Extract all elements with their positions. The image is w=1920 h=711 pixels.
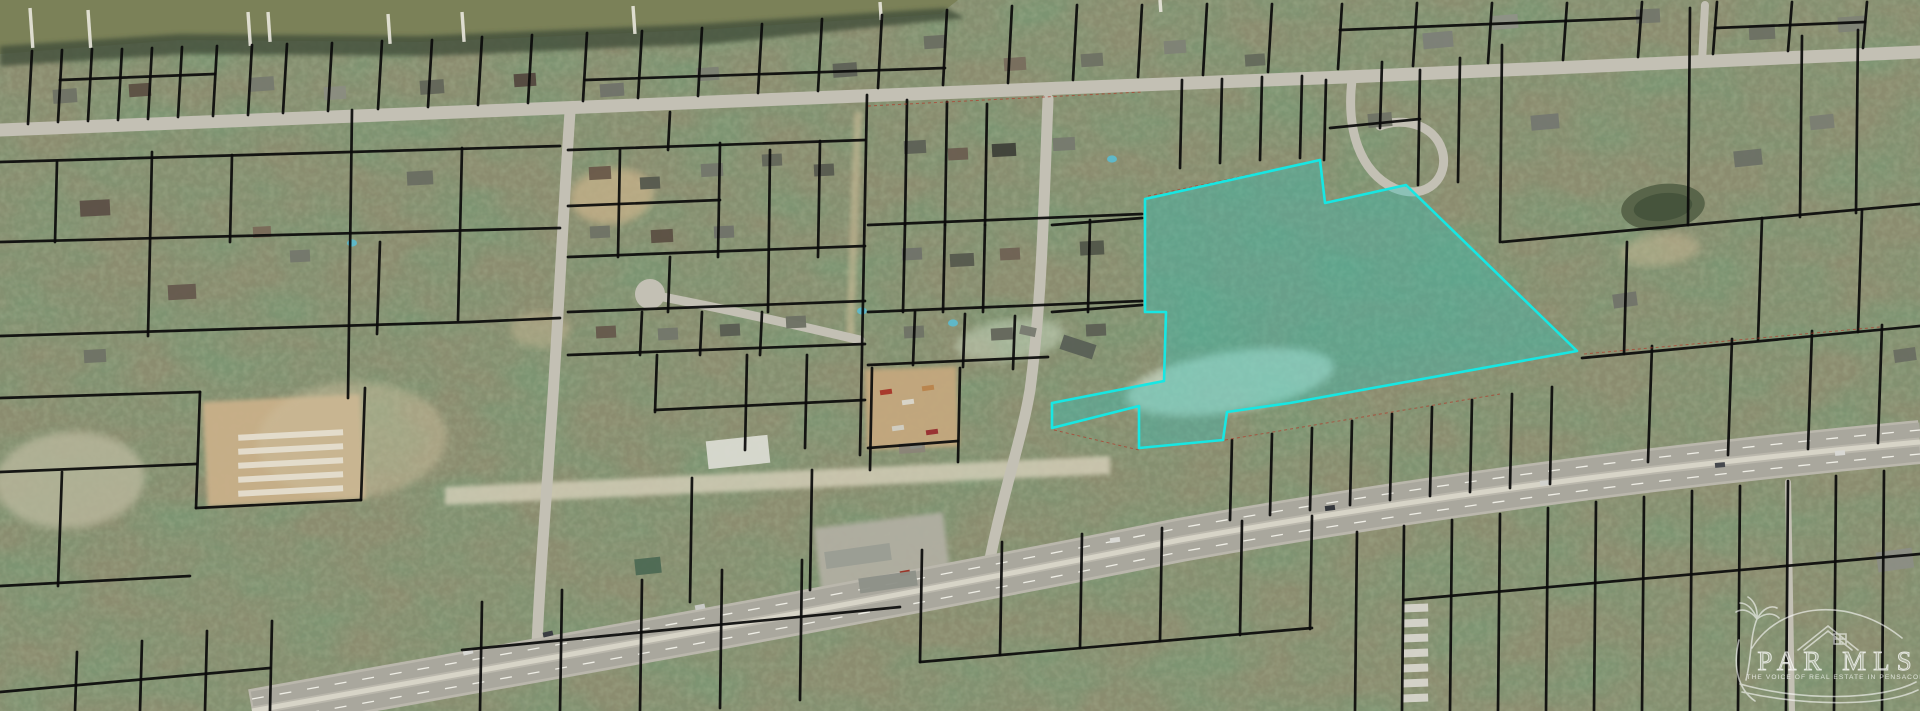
aerial-parcel-map-screenshot: PAR MLS THE VOICE OF REAL ESTATE IN PENS… (0, 0, 1920, 711)
watermark-brand-text: PAR MLS (1757, 646, 1918, 676)
watermark-tagline-text: THE VOICE OF REAL ESTATE IN PENSACOLA (1746, 674, 1920, 681)
aerial-map-canvas[interactable]: PAR MLS THE VOICE OF REAL ESTATE IN PENS… (0, 0, 1920, 711)
